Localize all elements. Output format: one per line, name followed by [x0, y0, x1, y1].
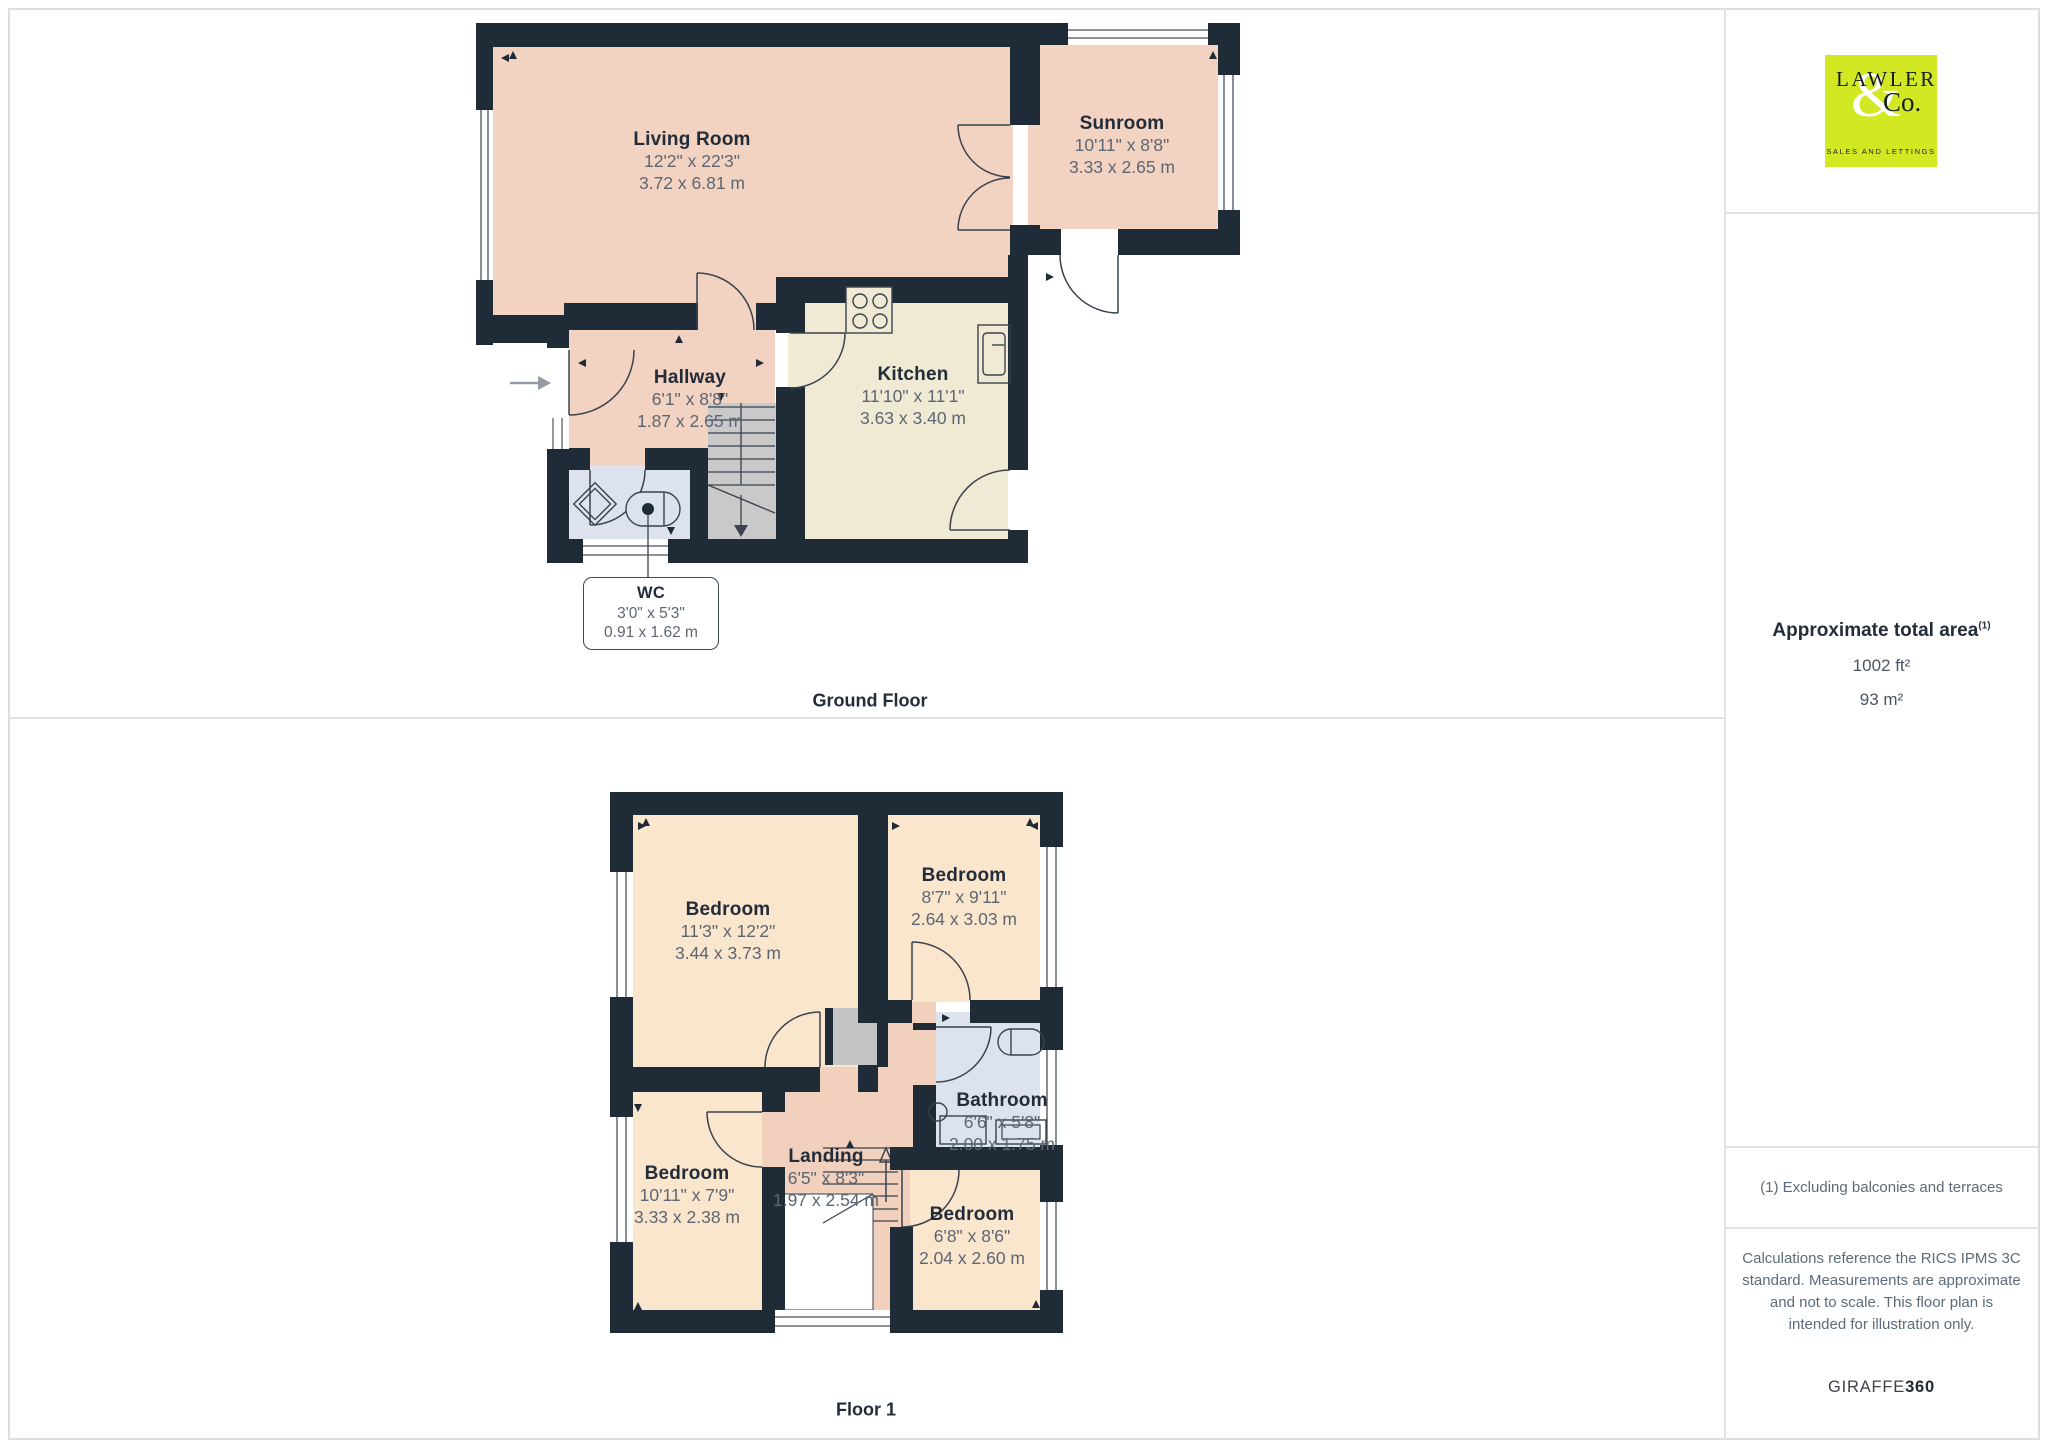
room-label-kitchen: Kitchen 11'10" x 11'1" 3.63 x 3.40 m	[860, 363, 966, 429]
room-label-bathroom: Bathroom 6'6" x 5'8" 2.00 x 1.75 m	[949, 1089, 1055, 1155]
room-label-bedroom-top-right: Bedroom 8'7" x 9'11" 2.64 x 3.03 m	[911, 864, 1017, 930]
sidebar-divider	[1724, 8, 1726, 1440]
lawler-co-logo: & LAWLER Co. SALES AND LETTINGS	[1825, 55, 1937, 167]
total-area-imperial: 1002 ft²	[1726, 656, 2037, 676]
ground-floor-label: Ground Floor	[813, 691, 928, 712]
footnote-marker: (1)	[1978, 621, 1990, 632]
room-label-landing: Landing 6'5" x 8'3" 1.97 x 2.54 m	[773, 1145, 879, 1211]
entry-arrow-icon	[510, 376, 551, 390]
room-label-bedroom-bottom-left: Bedroom 10'11" x 7'9" 3.33 x 2.38 m	[634, 1162, 740, 1228]
toilet-icon	[626, 492, 680, 526]
area-footnote: (1) Excluding balconies and terraces	[1726, 1179, 2037, 1196]
room-label-sunroom: Sunroom 10'11" x 8'8" 3.33 x 2.65 m	[1069, 112, 1175, 178]
giraffe360-brand: GIRAFFE360	[1726, 1378, 2037, 1397]
sidebar-divider-disclaimer	[1725, 1227, 2038, 1229]
disclaimer-text: Calculations reference the RICS IPMS 3C …	[1741, 1248, 2022, 1336]
sidebar-divider-top	[1725, 212, 2038, 214]
room-label-living-room: Living Room 12'2" x 22'3" 3.72 x 6.81 m	[633, 128, 750, 194]
stairwell-void	[773, 1194, 873, 1310]
room-label-bedroom-bottom-right: Bedroom 6'8" x 8'6" 2.04 x 2.60 m	[919, 1203, 1025, 1269]
room-label-hallway: Hallway 6'1" x 8'8" 1.87 x 2.65 m	[637, 366, 743, 432]
wc-callout: WC 3'0" x 5'3" 0.91 x 1.62 m	[583, 577, 719, 650]
floor1-plan	[590, 782, 1140, 1345]
logo-tagline: SALES AND LETTINGS	[1825, 147, 1937, 156]
total-area-panel: Approximate total area(1) 1002 ft² 93 m²	[1726, 620, 2037, 710]
floorplan-page: Living Room 12'2" x 22'3" 3.72 x 6.81 m …	[0, 0, 2048, 1448]
logo-co: Co.	[1883, 87, 1921, 118]
total-area-metric: 93 m²	[1726, 690, 2037, 710]
floor1-label: Floor 1	[836, 1400, 896, 1421]
floors-divider	[8, 717, 1725, 719]
hob-icon	[846, 287, 892, 333]
total-area-title: Approximate total area(1)	[1726, 620, 2037, 642]
room-label-bedroom-top-left: Bedroom 11'3" x 12'2" 3.44 x 3.73 m	[675, 898, 781, 964]
sidebar-divider-footnote	[1725, 1146, 2038, 1148]
